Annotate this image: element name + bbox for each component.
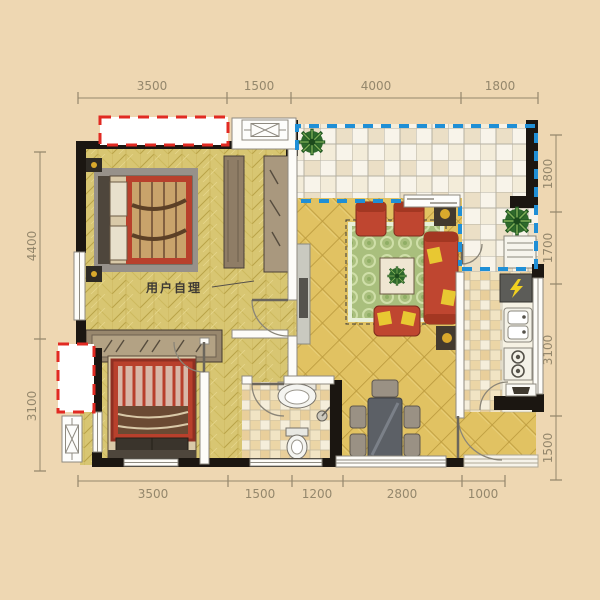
tv-icon	[299, 278, 308, 318]
dining-chair	[350, 434, 366, 456]
dim-label: 1500	[541, 433, 555, 464]
wardrobe-doors	[92, 335, 216, 357]
dim-label: 4000	[361, 79, 392, 93]
dining-chair	[372, 380, 398, 397]
dim-label: 1200	[302, 487, 333, 501]
ac-unit-icon	[242, 120, 288, 140]
sofa-pillow	[377, 311, 392, 326]
sliding-closet	[264, 156, 290, 272]
bed2-throw	[118, 406, 188, 434]
floor-plan-page: 用户自理 3500 1500 4000 1800 3500 1500 1200 …	[0, 0, 600, 600]
ac-platform	[58, 344, 94, 412]
bed1-headboard	[98, 176, 110, 264]
dim-label: 1800	[541, 159, 555, 190]
closet	[224, 156, 244, 268]
dimension-top: 3500 1500 4000 1800	[78, 79, 538, 104]
dimension-bottom: 3500 1500 1200 2800 1000	[78, 475, 505, 501]
dim-label: 3100	[25, 391, 39, 422]
dim-label: 1800	[485, 79, 516, 93]
gas-stove	[504, 348, 532, 380]
dining-chair	[404, 406, 420, 428]
dim-label: 1700	[541, 233, 555, 264]
bed1-pillow	[110, 226, 127, 260]
sofa	[424, 232, 458, 324]
bedroom2-furniture	[108, 356, 196, 458]
dimension-left: 4400 3100	[25, 152, 46, 471]
kitchen-fixtures	[500, 236, 536, 402]
dim-label: 2800	[387, 487, 418, 501]
sliding-door	[404, 195, 460, 207]
entry-floor	[462, 412, 536, 460]
dim-label: 1500	[244, 79, 275, 93]
entry-threshold	[464, 455, 538, 467]
dining-chair	[350, 406, 366, 428]
plant-icon	[299, 129, 325, 155]
window	[336, 456, 446, 467]
annotation-text: 用户自理	[145, 280, 202, 295]
laundry-unit	[504, 236, 536, 268]
dim-label: 1000	[468, 487, 499, 501]
dim-label: 3500	[137, 79, 168, 93]
dining-chair	[404, 434, 420, 456]
plant-icon	[387, 266, 406, 285]
floor-plan-canvas: 用户自理 3500 1500 4000 1800 3500 1500 1200 …	[0, 0, 600, 600]
dim-label: 3500	[138, 487, 169, 501]
plant-icon	[503, 207, 532, 236]
sofa-pillow	[401, 311, 416, 326]
dim-label: 4400	[25, 231, 39, 262]
bed1-pillow	[110, 182, 127, 216]
lamp-icon	[91, 271, 97, 277]
sofa-pillow	[441, 289, 456, 306]
lamp-icon	[91, 162, 97, 168]
dimension-right: 1800 1700 3100 1500	[541, 135, 562, 480]
ac-unit-icon	[62, 416, 82, 462]
dim-label: 3100	[541, 335, 555, 366]
dim-label: 1500	[245, 487, 276, 501]
ac-platform	[100, 117, 228, 145]
bed2-headboard	[108, 450, 196, 458]
